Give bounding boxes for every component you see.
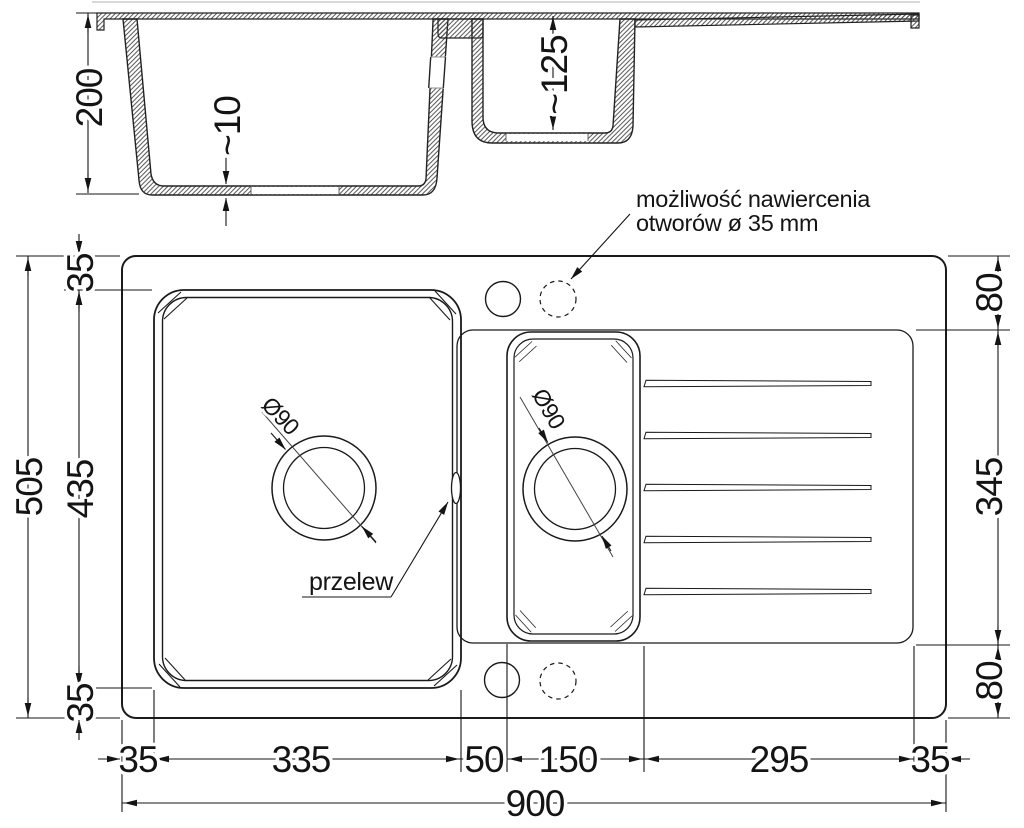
plan-view: Ø90 Ø90 możliwość nawiercenia otworów ø …: [122, 186, 946, 718]
overflow-label: przelew: [309, 568, 394, 596]
drill-note: możliwość nawiercenia otworów ø 35 mm: [571, 186, 871, 279]
main-bowl-corner-marks: [158, 291, 457, 687]
dim-small-bowl-depth: ~125: [534, 16, 575, 130]
groove-1: [644, 380, 871, 387]
main-drain: Ø90: [257, 392, 376, 543]
overflow-slot: [452, 473, 461, 504]
main-drain-label: Ø90: [257, 392, 305, 440]
drawing-canvas: 200 ~10 ~125: [0, 0, 1024, 828]
small-bowl-corner-marks: [515, 341, 633, 633]
dim-50: 50: [464, 739, 504, 780]
section-overflow-gap: [426, 57, 447, 88]
overflow-callout: przelew: [302, 502, 448, 597]
groove-4: [644, 536, 871, 543]
dim-150: 150: [539, 739, 598, 780]
plan-dimensions: 505 435 35 35 80 345 80: [9, 234, 1010, 824]
dim-505: 505: [9, 457, 50, 516]
section-small-drain-recess: [506, 134, 588, 141]
small-drain-label: Ø90: [527, 384, 571, 433]
groove-5: [644, 588, 871, 595]
dim-200: 200: [69, 68, 110, 127]
small-bowl-outline: [507, 332, 640, 641]
recessed-zone-outline: [457, 330, 913, 643]
groove-2: [644, 432, 871, 439]
dim-10: ~10: [207, 96, 248, 156]
optional-hole-top: [540, 281, 576, 317]
main-bowl-outline: [154, 290, 461, 688]
dim-35-top: 35: [60, 253, 101, 293]
main-bowl-inner-outline: [163, 298, 453, 681]
faucet-hole-bottom: [485, 663, 520, 698]
section-main-drain-recess: [251, 187, 339, 194]
dim-bottom-thickness: ~10: [207, 96, 248, 226]
drainer-grooves: [644, 380, 871, 595]
section-right-lip: [911, 15, 919, 28]
small-drain: Ø90: [520, 384, 627, 557]
optional-hole-bottom: [540, 663, 576, 699]
drill-note-line1: możliwość nawiercenia: [636, 186, 871, 212]
dim-345: 345: [969, 457, 1010, 516]
sink-technical-drawing: 200 ~10 ~125: [0, 0, 1024, 828]
dim-295: 295: [750, 739, 809, 780]
dim-80-top: 80: [969, 273, 1010, 313]
drill-note-line2: otworów ø 35 mm: [636, 210, 818, 236]
groove-3: [644, 484, 871, 491]
dim-35-b6: 35: [910, 739, 950, 780]
faucet-hole-top: [486, 282, 521, 317]
dim-900: 900: [506, 783, 565, 824]
section-main-bowl: [123, 19, 448, 195]
dim-435: 435: [60, 459, 101, 518]
dim-125: ~125: [534, 35, 575, 115]
dim-35-b1: 35: [118, 739, 158, 780]
dim-35-bottom-left: 35: [60, 683, 101, 723]
dim-80-bottom: 80: [969, 661, 1010, 701]
dim-335: 335: [272, 739, 331, 780]
